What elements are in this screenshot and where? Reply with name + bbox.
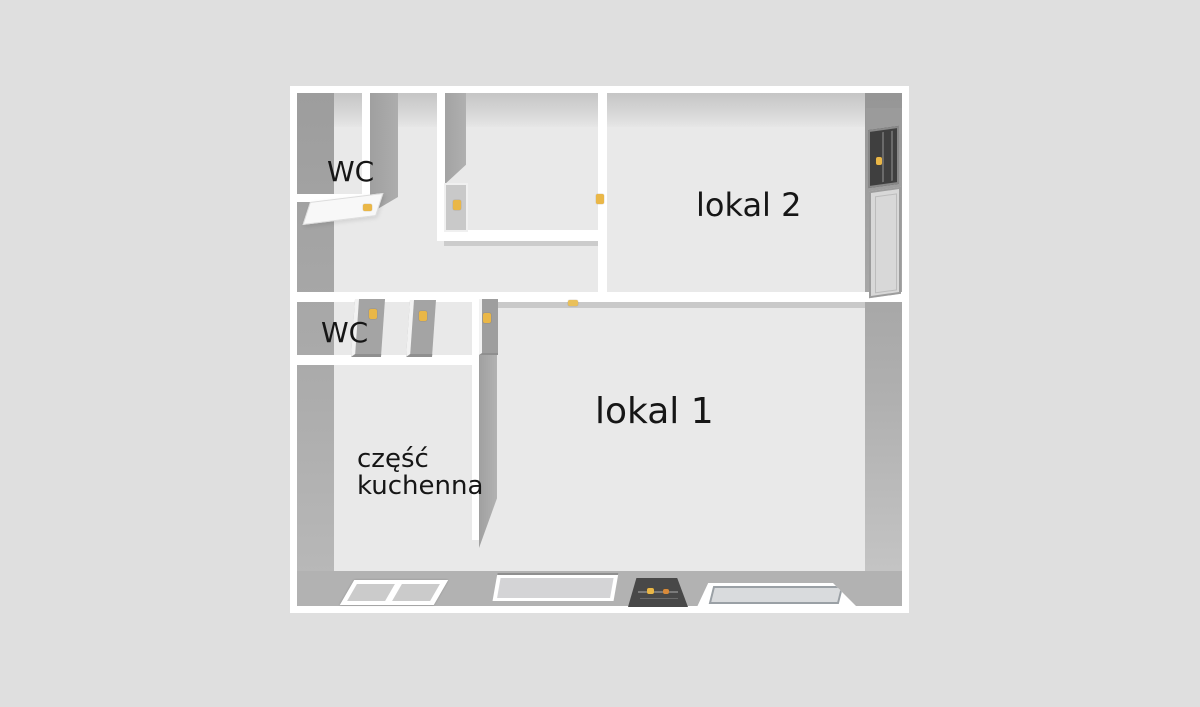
middle-door-leaf-2: [406, 300, 436, 357]
dark-window-mullion: [891, 131, 893, 181]
heater-line: [638, 591, 678, 593]
room-label-kitchen: część kuchenna: [357, 446, 483, 500]
lokal-1-top-wall-underface: [497, 302, 865, 308]
window-lokal-1-right: [697, 583, 857, 607]
kitchen-door-leaf: [479, 299, 498, 355]
heater-line: [640, 598, 678, 599]
door-handle-kitchen: [483, 313, 491, 323]
door-handle-middle-2: [419, 311, 427, 321]
kitchen-lokal-1-wall: [472, 292, 479, 540]
kitchen-top-wall: [297, 355, 472, 365]
door-handle-hall: [453, 200, 461, 210]
door-handle-middle-1: [369, 309, 377, 319]
dark-window-handle: [876, 157, 882, 165]
middle-dividing-wall: [297, 292, 902, 302]
window-pane: [709, 586, 843, 604]
heater-knob-2: [663, 589, 669, 594]
floorplan-canvas: WC lokal 2 WC część kuchenna lokal 1: [0, 0, 1200, 707]
window-pane: [347, 584, 395, 601]
door-handle-lokal-2: [596, 194, 604, 204]
entry-door-panel-line: [875, 193, 897, 293]
window-pane: [392, 584, 440, 601]
room-label-lokal-2: lokal 2: [696, 189, 801, 222]
ceiling-light-lokal-1: [568, 300, 578, 306]
double-window-kitchen: [340, 580, 448, 605]
room-label-wc-top: WC: [327, 157, 374, 186]
dark-window-mullion: [882, 132, 884, 182]
hall-room-bottom-wall-underface: [444, 241, 607, 246]
dark-window-lokal-2: [868, 126, 899, 188]
door-handle-wc-top: [363, 204, 372, 211]
room-label-lokal-1: lokal 1: [595, 393, 714, 430]
window-lokal-1-left: [493, 573, 619, 601]
heater-knob: [647, 588, 654, 594]
window-pane: [497, 578, 614, 598]
entry-door-lokal-2: [869, 187, 901, 298]
room-label-wc-middle: WC: [321, 318, 368, 347]
